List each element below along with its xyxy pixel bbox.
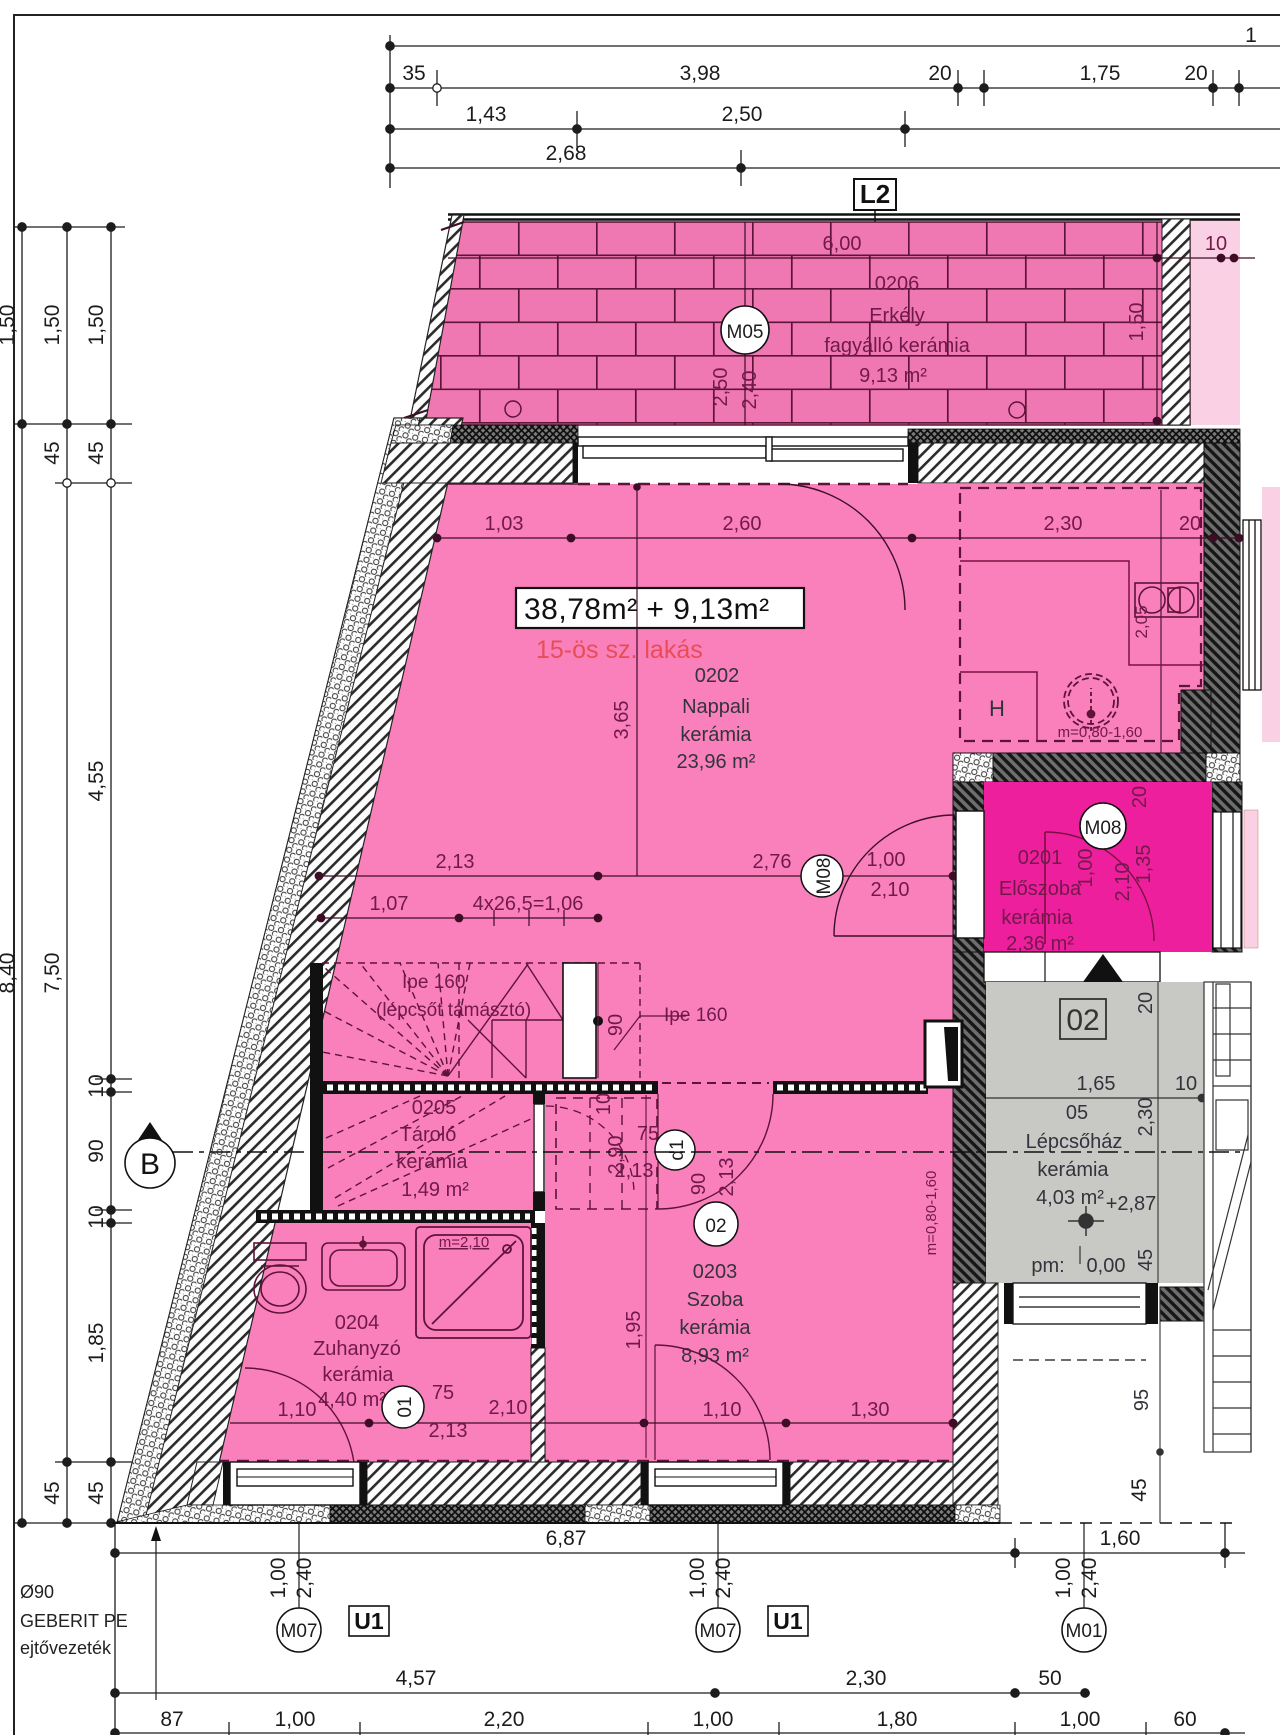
svg-text:2,10: 2,10 — [1112, 863, 1134, 902]
svg-text:2,13: 2,13 — [429, 1420, 468, 1442]
svg-text:1,03: 1,03 — [485, 513, 524, 535]
svg-text:Ipe 160: Ipe 160 — [402, 972, 465, 993]
svg-text:1,50: 1,50 — [0, 305, 19, 346]
svg-text:35: 35 — [402, 62, 425, 85]
svg-text:6,87: 6,87 — [546, 1527, 587, 1550]
svg-text:1,00: 1,00 — [686, 1558, 709, 1599]
svg-text:15-ös sz. lakás: 15-ös sz. lakás — [536, 636, 703, 664]
svg-text:0206: 0206 — [875, 273, 920, 295]
svg-text:10: 10 — [1175, 1073, 1197, 1095]
svg-text:2,13: 2,13 — [615, 1160, 654, 1182]
svg-text:1,00: 1,00 — [267, 1558, 290, 1599]
svg-text:75: 75 — [637, 1123, 659, 1145]
svg-text:90: 90 — [85, 1139, 108, 1162]
svg-text:1,75: 1,75 — [1080, 62, 1121, 85]
svg-text:M08: M08 — [1085, 818, 1122, 839]
svg-text:23,96 m²: 23,96 m² — [677, 751, 756, 773]
svg-text:1,85: 1,85 — [85, 1323, 108, 1364]
svg-text:4,55: 4,55 — [85, 761, 108, 802]
svg-text:20: 20 — [928, 62, 951, 85]
svg-text:1,00: 1,00 — [1060, 1708, 1101, 1731]
svg-text:Lépcsőház: Lépcsőház — [1026, 1131, 1123, 1153]
svg-text:2,50: 2,50 — [722, 103, 763, 126]
svg-text:B: B — [140, 1148, 160, 1181]
svg-text:7,50: 7,50 — [41, 953, 64, 994]
svg-text:+2,87: +2,87 — [1106, 1193, 1157, 1215]
svg-text:2,13: 2,13 — [716, 1158, 738, 1197]
svg-text:M07: M07 — [700, 1621, 737, 1642]
svg-text:1,00: 1,00 — [693, 1708, 734, 1731]
svg-text:95: 95 — [1131, 1389, 1153, 1411]
svg-text:1,49 m²: 1,49 m² — [401, 1179, 469, 1201]
svg-text:1,43: 1,43 — [466, 103, 507, 126]
svg-text:50: 50 — [1038, 1667, 1061, 1690]
svg-text:GEBERIT PE: GEBERIT PE — [20, 1611, 128, 1631]
svg-text:2,10: 2,10 — [489, 1397, 528, 1419]
svg-text:kerámia: kerámia — [1001, 907, 1073, 929]
svg-text:20: 20 — [1184, 62, 1207, 85]
svg-text:H: H — [989, 696, 1005, 721]
svg-text:45: 45 — [85, 441, 108, 464]
svg-text:U1: U1 — [354, 1608, 384, 1634]
svg-text:4,03 m²: 4,03 m² — [1036, 1187, 1104, 1209]
svg-text:45: 45 — [41, 1481, 64, 1504]
svg-text:0203: 0203 — [693, 1261, 738, 1283]
svg-text:3,98: 3,98 — [680, 62, 721, 85]
svg-text:(lépcsőt támásztó): (lépcsőt támásztó) — [376, 1000, 531, 1021]
svg-text:20: 20 — [1135, 992, 1157, 1014]
svg-text:1,07: 1,07 — [370, 893, 409, 915]
svg-text:8,93 m²: 8,93 m² — [681, 1345, 749, 1367]
svg-text:1,50: 1,50 — [1126, 303, 1148, 342]
svg-text:87: 87 — [160, 1708, 183, 1731]
svg-text:2,20: 2,20 — [484, 1708, 525, 1731]
svg-text:1,30: 1,30 — [851, 1399, 890, 1421]
svg-text:0205: 0205 — [412, 1097, 457, 1119]
svg-text:10: 10 — [593, 1093, 615, 1115]
svg-text:1,00: 1,00 — [867, 849, 906, 871]
svg-text:45: 45 — [1128, 1478, 1151, 1501]
svg-text:1,60: 1,60 — [1100, 1527, 1141, 1550]
svg-text:38,78m² + 9,13m²: 38,78m² + 9,13m² — [524, 593, 770, 626]
svg-text:kerámia: kerámia — [396, 1151, 468, 1173]
svg-text:10: 10 — [85, 1074, 108, 1097]
svg-text:2,30: 2,30 — [1135, 1098, 1157, 1137]
svg-text:Tároló: Tároló — [400, 1124, 457, 1146]
svg-text:4x26,5=1,06: 4x26,5=1,06 — [473, 893, 584, 915]
svg-text:45: 45 — [41, 441, 64, 464]
svg-text:Szoba: Szoba — [687, 1289, 745, 1311]
svg-text:8,40: 8,40 — [0, 953, 19, 994]
svg-text:1,50: 1,50 — [41, 305, 64, 346]
svg-text:05: 05 — [1066, 1102, 1088, 1124]
svg-text:20: 20 — [1179, 513, 1201, 535]
svg-text:2,30: 2,30 — [846, 1667, 887, 1690]
svg-text:kerámia: kerámia — [679, 1317, 751, 1339]
svg-text:1,80: 1,80 — [877, 1708, 918, 1731]
svg-text:02: 02 — [1066, 1004, 1099, 1037]
svg-text:1,00: 1,00 — [1052, 1558, 1075, 1599]
svg-text:pm:: pm: — [1031, 1255, 1064, 1277]
svg-text:2,40: 2,40 — [739, 371, 761, 410]
svg-text:1,35: 1,35 — [1133, 845, 1155, 884]
svg-text:1: 1 — [1245, 24, 1257, 47]
svg-text:2,40: 2,40 — [712, 1558, 735, 1599]
svg-text:Erkély: Erkély — [869, 305, 925, 327]
svg-text:2,40: 2,40 — [1078, 1558, 1101, 1599]
svg-text:1,10: 1,10 — [703, 1399, 742, 1421]
svg-text:m=2,10: m=2,10 — [439, 1234, 489, 1251]
svg-text:45: 45 — [85, 1481, 108, 1504]
svg-text:90: 90 — [605, 1014, 627, 1036]
svg-text:01: 01 — [395, 1396, 416, 1417]
svg-text:0204: 0204 — [335, 1312, 380, 1334]
svg-text:90: 90 — [688, 1173, 710, 1195]
svg-text:M07: M07 — [281, 1621, 318, 1642]
svg-text:Nappali: Nappali — [682, 696, 750, 718]
svg-text:U1: U1 — [773, 1608, 803, 1634]
svg-text:4,40 m²: 4,40 m² — [318, 1389, 386, 1411]
svg-text:2,13: 2,13 — [436, 851, 475, 873]
svg-text:m=0,80-1,60: m=0,80-1,60 — [1058, 724, 1143, 741]
svg-text:ejtővezeték: ejtővezeték — [20, 1638, 112, 1658]
svg-text:Előszoba: Előszoba — [999, 878, 1082, 900]
svg-text:3,65: 3,65 — [611, 701, 633, 740]
svg-text:kerámia: kerámia — [322, 1364, 394, 1386]
svg-text:Zuhanyzó: Zuhanyzó — [313, 1338, 401, 1360]
svg-text:1,10: 1,10 — [278, 1399, 317, 1421]
svg-text:2,50: 2,50 — [710, 368, 732, 407]
svg-text:kerámia: kerámia — [680, 724, 752, 746]
svg-text:kerámia: kerámia — [1037, 1159, 1109, 1181]
svg-text:1,00: 1,00 — [275, 1708, 316, 1731]
svg-text:1,95: 1,95 — [623, 1311, 645, 1350]
svg-text:L2: L2 — [860, 179, 890, 209]
svg-text:75: 75 — [432, 1382, 454, 1404]
svg-text:1,65: 1,65 — [1077, 1073, 1116, 1095]
svg-text:0,00: 0,00 — [1087, 1255, 1126, 1277]
svg-text:d1: d1 — [667, 1139, 688, 1160]
svg-text:2,10: 2,10 — [871, 879, 910, 901]
svg-text:2,60: 2,60 — [723, 513, 762, 535]
svg-text:2,30: 2,30 — [1044, 513, 1083, 535]
svg-text:m=0,80-1,60: m=0,80-1,60 — [923, 1171, 940, 1256]
svg-text:2,68: 2,68 — [546, 142, 587, 165]
svg-text:9,13 m²: 9,13 m² — [859, 365, 927, 387]
svg-text:6,00: 6,00 — [823, 233, 862, 255]
svg-text:0201: 0201 — [1018, 847, 1063, 869]
svg-text:60: 60 — [1173, 1708, 1196, 1731]
svg-text:10: 10 — [85, 1205, 108, 1228]
svg-text:20: 20 — [1129, 786, 1151, 808]
svg-text:0202: 0202 — [695, 665, 740, 687]
svg-text:4,57: 4,57 — [396, 1667, 437, 1690]
svg-text:fagyálló kerámia: fagyálló kerámia — [824, 335, 971, 357]
svg-text:2,40: 2,40 — [293, 1558, 316, 1599]
svg-text:2,76: 2,76 — [753, 851, 792, 873]
svg-text:1,00: 1,00 — [1075, 849, 1097, 888]
svg-text:M01: M01 — [1066, 1621, 1103, 1642]
svg-text:45: 45 — [1135, 1249, 1157, 1271]
svg-text:10: 10 — [1205, 233, 1227, 255]
svg-text:1,50: 1,50 — [85, 305, 108, 346]
svg-text:2,05: 2,05 — [1132, 605, 1151, 638]
svg-text:Ø90: Ø90 — [20, 1582, 54, 1602]
svg-text:M08: M08 — [814, 858, 835, 895]
svg-text:M05: M05 — [727, 322, 764, 343]
svg-text:02: 02 — [705, 1216, 726, 1237]
